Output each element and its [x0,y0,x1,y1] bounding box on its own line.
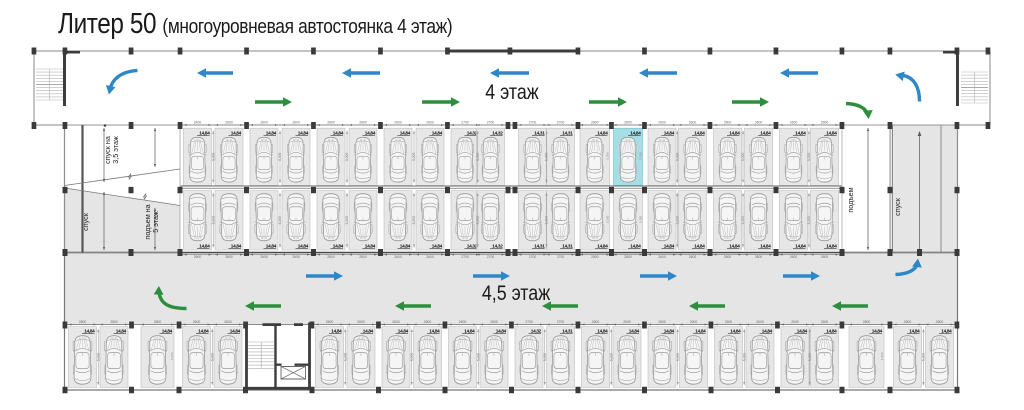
svg-text:5,300: 5,300 [807,216,811,224]
svg-text:5,300: 5,300 [412,216,416,224]
svg-text:2600: 2600 [592,320,600,324]
svg-text:5,300: 5,300 [476,216,480,224]
svg-text:2800: 2800 [154,320,162,324]
svg-text:2600: 2600 [724,120,732,124]
svg-text:14,84: 14,84 [664,329,675,334]
svg-text:5,300: 5,300 [343,353,347,361]
svg-text:14,84: 14,84 [597,130,608,135]
svg-text:2600: 2600 [725,320,733,324]
svg-text:14,84: 14,84 [84,329,95,334]
svg-text:5,300: 5,300 [605,152,609,160]
svg-text:2600: 2600 [326,320,334,324]
svg-text:14,32: 14,32 [492,243,503,248]
svg-text:5,300: 5,300 [609,353,613,361]
svg-text:5,300: 5,300 [605,215,609,223]
svg-text:14,84: 14,84 [298,243,309,248]
svg-text:2400: 2400 [194,120,202,124]
svg-text:5,300: 5,300 [476,153,480,161]
svg-text:14,84: 14,84 [760,243,771,248]
svg-text:2700: 2700 [487,120,495,124]
svg-text:14,84: 14,84 [231,130,242,135]
svg-text:14,84: 14,84 [398,329,409,334]
svg-text:5,300: 5,300 [412,153,416,161]
svg-text:2600: 2600 [394,255,402,259]
svg-text:14,31: 14,31 [534,130,545,135]
svg-text:5,300: 5,300 [676,353,680,361]
svg-text:5,300: 5,300 [278,216,282,224]
svg-text:2600: 2600 [426,120,434,124]
svg-text:14,84: 14,84 [333,243,344,248]
svg-text:5,300: 5,300 [741,216,745,224]
svg-text:2600: 2600 [292,120,300,124]
svg-text:4 этаж: 4 этаж [485,81,538,105]
svg-text:5,300: 5,300 [345,216,349,224]
svg-text:2600: 2600 [194,255,202,259]
svg-text:14,84: 14,84 [872,329,883,334]
svg-text:14,84: 14,84 [664,130,675,135]
svg-text:5,300: 5,300 [675,216,679,224]
svg-text:14,84: 14,84 [795,130,806,135]
svg-text:14,84: 14,84 [331,329,342,334]
svg-text:14,32: 14,32 [467,243,478,248]
svg-text:2600: 2600 [260,255,268,259]
svg-text:2600: 2600 [904,320,912,324]
svg-text:2600: 2600 [292,255,300,259]
svg-text:2600: 2600 [821,255,829,259]
svg-text:5,300: 5,300 [741,153,745,161]
svg-text:14,84: 14,84 [400,243,411,248]
svg-text:14,84: 14,84 [199,243,210,248]
svg-text:14,84: 14,84 [729,130,740,135]
svg-text:14,84: 14,84 [198,329,209,334]
svg-text:2600: 2600 [936,320,944,324]
svg-text:14,32: 14,32 [492,130,503,135]
svg-text:2600: 2600 [821,120,829,124]
svg-text:14,32: 14,32 [531,329,542,334]
svg-text:2600: 2600 [755,255,763,259]
svg-text:2700: 2700 [461,255,469,259]
svg-text:2800: 2800 [624,255,632,259]
svg-text:14,84: 14,84 [630,243,641,248]
svg-text:2800: 2800 [79,320,87,324]
svg-text:4,5 этаж: 4,5 этаж [482,282,550,306]
svg-text:2600: 2600 [392,320,400,324]
svg-text:14,84: 14,84 [400,130,411,135]
svg-text:14,84: 14,84 [230,329,241,334]
svg-text:2700: 2700 [529,255,537,259]
svg-text:спуск: спуск [893,197,902,216]
svg-text:2800: 2800 [591,255,599,259]
svg-text:2600: 2600 [490,320,498,324]
svg-text:2600: 2600 [260,120,268,124]
svg-text:2800: 2800 [863,320,871,324]
svg-text:14,31: 14,31 [562,329,573,334]
svg-text:14,31: 14,31 [562,130,573,135]
svg-text:14,84: 14,84 [365,243,376,248]
svg-text:2700: 2700 [525,320,533,324]
svg-text:14,84: 14,84 [826,329,837,334]
svg-text:14,84: 14,84 [597,243,608,248]
svg-text:14,84: 14,84 [797,329,808,334]
svg-text:5,300: 5,300 [210,353,214,361]
svg-text:5,300: 5,300 [96,353,100,361]
svg-text:2600: 2600 [690,320,698,324]
svg-text:14,84: 14,84 [826,243,837,248]
svg-text:2600: 2600 [790,255,798,259]
svg-text:14,84: 14,84 [694,130,705,135]
svg-text:2800: 2800 [591,120,599,124]
svg-text:5,300: 5,300 [211,153,215,161]
svg-text:14,84: 14,84 [795,243,806,248]
svg-text:спуск на3,5 этаж: спуск на3,5 этаж [103,136,120,164]
svg-text:2600: 2600 [821,320,829,324]
svg-text:2600: 2600 [756,320,764,324]
svg-text:2600: 2600 [724,255,732,259]
svg-text:14,84: 14,84 [432,130,443,135]
svg-text:14,84: 14,84 [909,329,920,334]
svg-text:14,31: 14,31 [534,243,545,248]
svg-text:14,84: 14,84 [630,130,641,135]
svg-text:14,84: 14,84 [199,130,210,135]
svg-text:14,84: 14,84 [762,329,773,334]
svg-text:2600: 2600 [755,120,763,124]
svg-text:14,84: 14,84 [729,243,740,248]
svg-text:5,300: 5,300 [170,352,174,360]
svg-text:5,300: 5,300 [545,153,549,161]
svg-text:14,84: 14,84 [496,329,507,334]
svg-text:14,84: 14,84 [298,130,309,135]
svg-text:2600: 2600 [327,255,335,259]
svg-text:14,84: 14,84 [432,243,443,248]
svg-text:14,84: 14,84 [333,130,344,135]
svg-text:5,300: 5,300 [410,353,414,361]
svg-text:2600: 2600 [623,320,631,324]
svg-text:5,300: 5,300 [211,216,215,224]
svg-text:2600: 2600 [394,120,402,124]
svg-text:14,84: 14,84 [695,329,706,334]
svg-text:14,84: 14,84 [365,130,376,135]
svg-text:2600: 2600 [790,120,798,124]
svg-text:2600: 2600 [359,255,367,259]
svg-text:5,300: 5,300 [278,153,282,161]
svg-text:2800: 2800 [110,320,118,324]
svg-text:14,84: 14,84 [116,329,127,334]
svg-text:14,32: 14,32 [467,130,478,135]
svg-text:5,300: 5,300 [545,216,549,224]
svg-text:14,84: 14,84 [826,130,837,135]
svg-text:2600: 2600 [658,320,666,324]
svg-text:2600: 2600 [357,320,365,324]
svg-text:14,84: 14,84 [664,243,675,248]
svg-text:спуск: спуск [81,212,90,231]
svg-text:2600: 2600 [424,320,432,324]
svg-text:14,84: 14,84 [231,243,242,248]
svg-text:2600: 2600 [359,120,367,124]
svg-text:2600: 2600 [193,320,201,324]
svg-text:5,300: 5,300 [880,352,884,360]
svg-text:2600: 2600 [327,120,335,124]
svg-text:14,84: 14,84 [760,130,771,135]
svg-text:2600: 2600 [224,320,232,324]
svg-text:14,84: 14,84 [266,130,277,135]
svg-text:2700: 2700 [487,255,495,259]
svg-text:14,84: 14,84 [694,243,705,248]
svg-text:5,300: 5,300 [922,353,926,361]
svg-text:2700: 2700 [557,255,565,259]
svg-text:5,300: 5,300 [676,153,680,161]
svg-text:2600: 2600 [225,120,233,124]
svg-text:2700: 2700 [461,120,469,124]
svg-text:14,84: 14,84 [730,329,741,334]
svg-text:14,84: 14,84 [363,329,374,334]
svg-text:2600: 2600 [658,255,666,259]
svg-text:5,300: 5,300 [807,153,811,161]
svg-text:2600: 2600 [791,320,799,324]
svg-text:5,300: 5,300 [476,353,480,361]
svg-text:5,300: 5,300 [543,353,547,361]
svg-text:5,300: 5,300 [638,152,642,160]
svg-text:14,84: 14,84 [464,329,475,334]
svg-text:2600: 2600 [689,255,697,259]
svg-text:2700: 2700 [529,120,537,124]
svg-text:2600: 2600 [426,255,434,259]
svg-text:5,300: 5,300 [742,353,746,361]
svg-text:5,300: 5,300 [808,353,812,361]
svg-text:14,84: 14,84 [429,329,440,334]
svg-text:2600: 2600 [658,120,666,124]
svg-text:14,84: 14,84 [629,329,640,334]
svg-text:5,300: 5,300 [345,153,349,161]
svg-text:2600: 2600 [225,255,233,259]
svg-text:2700: 2700 [557,120,565,124]
svg-text:2600: 2600 [689,120,697,124]
svg-text:14,84: 14,84 [597,329,608,334]
svg-text:14,84: 14,84 [162,329,173,334]
svg-text:2600: 2600 [459,320,467,324]
svg-text:2800: 2800 [624,120,632,124]
svg-text:5,300: 5,300 [638,215,642,223]
svg-text:14,31: 14,31 [562,243,573,248]
svg-text:14,84: 14,84 [266,243,277,248]
svg-text:2700: 2700 [557,320,565,324]
svg-text:подъем: подъем [846,187,855,212]
svg-text:14,84: 14,84 [941,329,952,334]
